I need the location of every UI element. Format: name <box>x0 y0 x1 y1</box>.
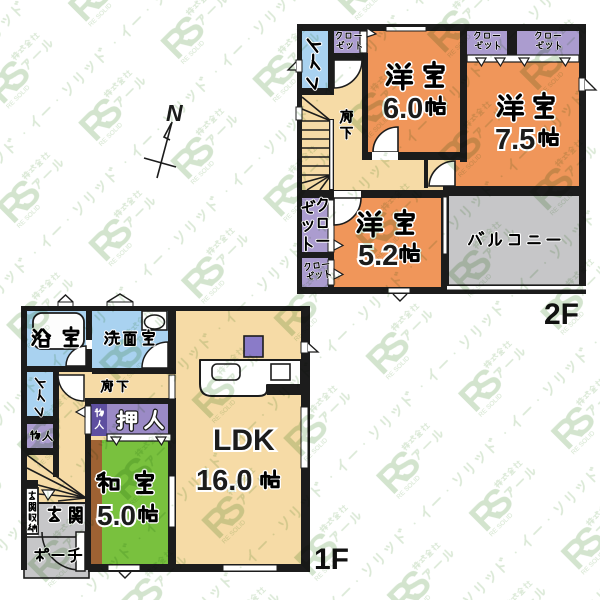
svg-text:7.5: 7.5 <box>495 124 535 156</box>
